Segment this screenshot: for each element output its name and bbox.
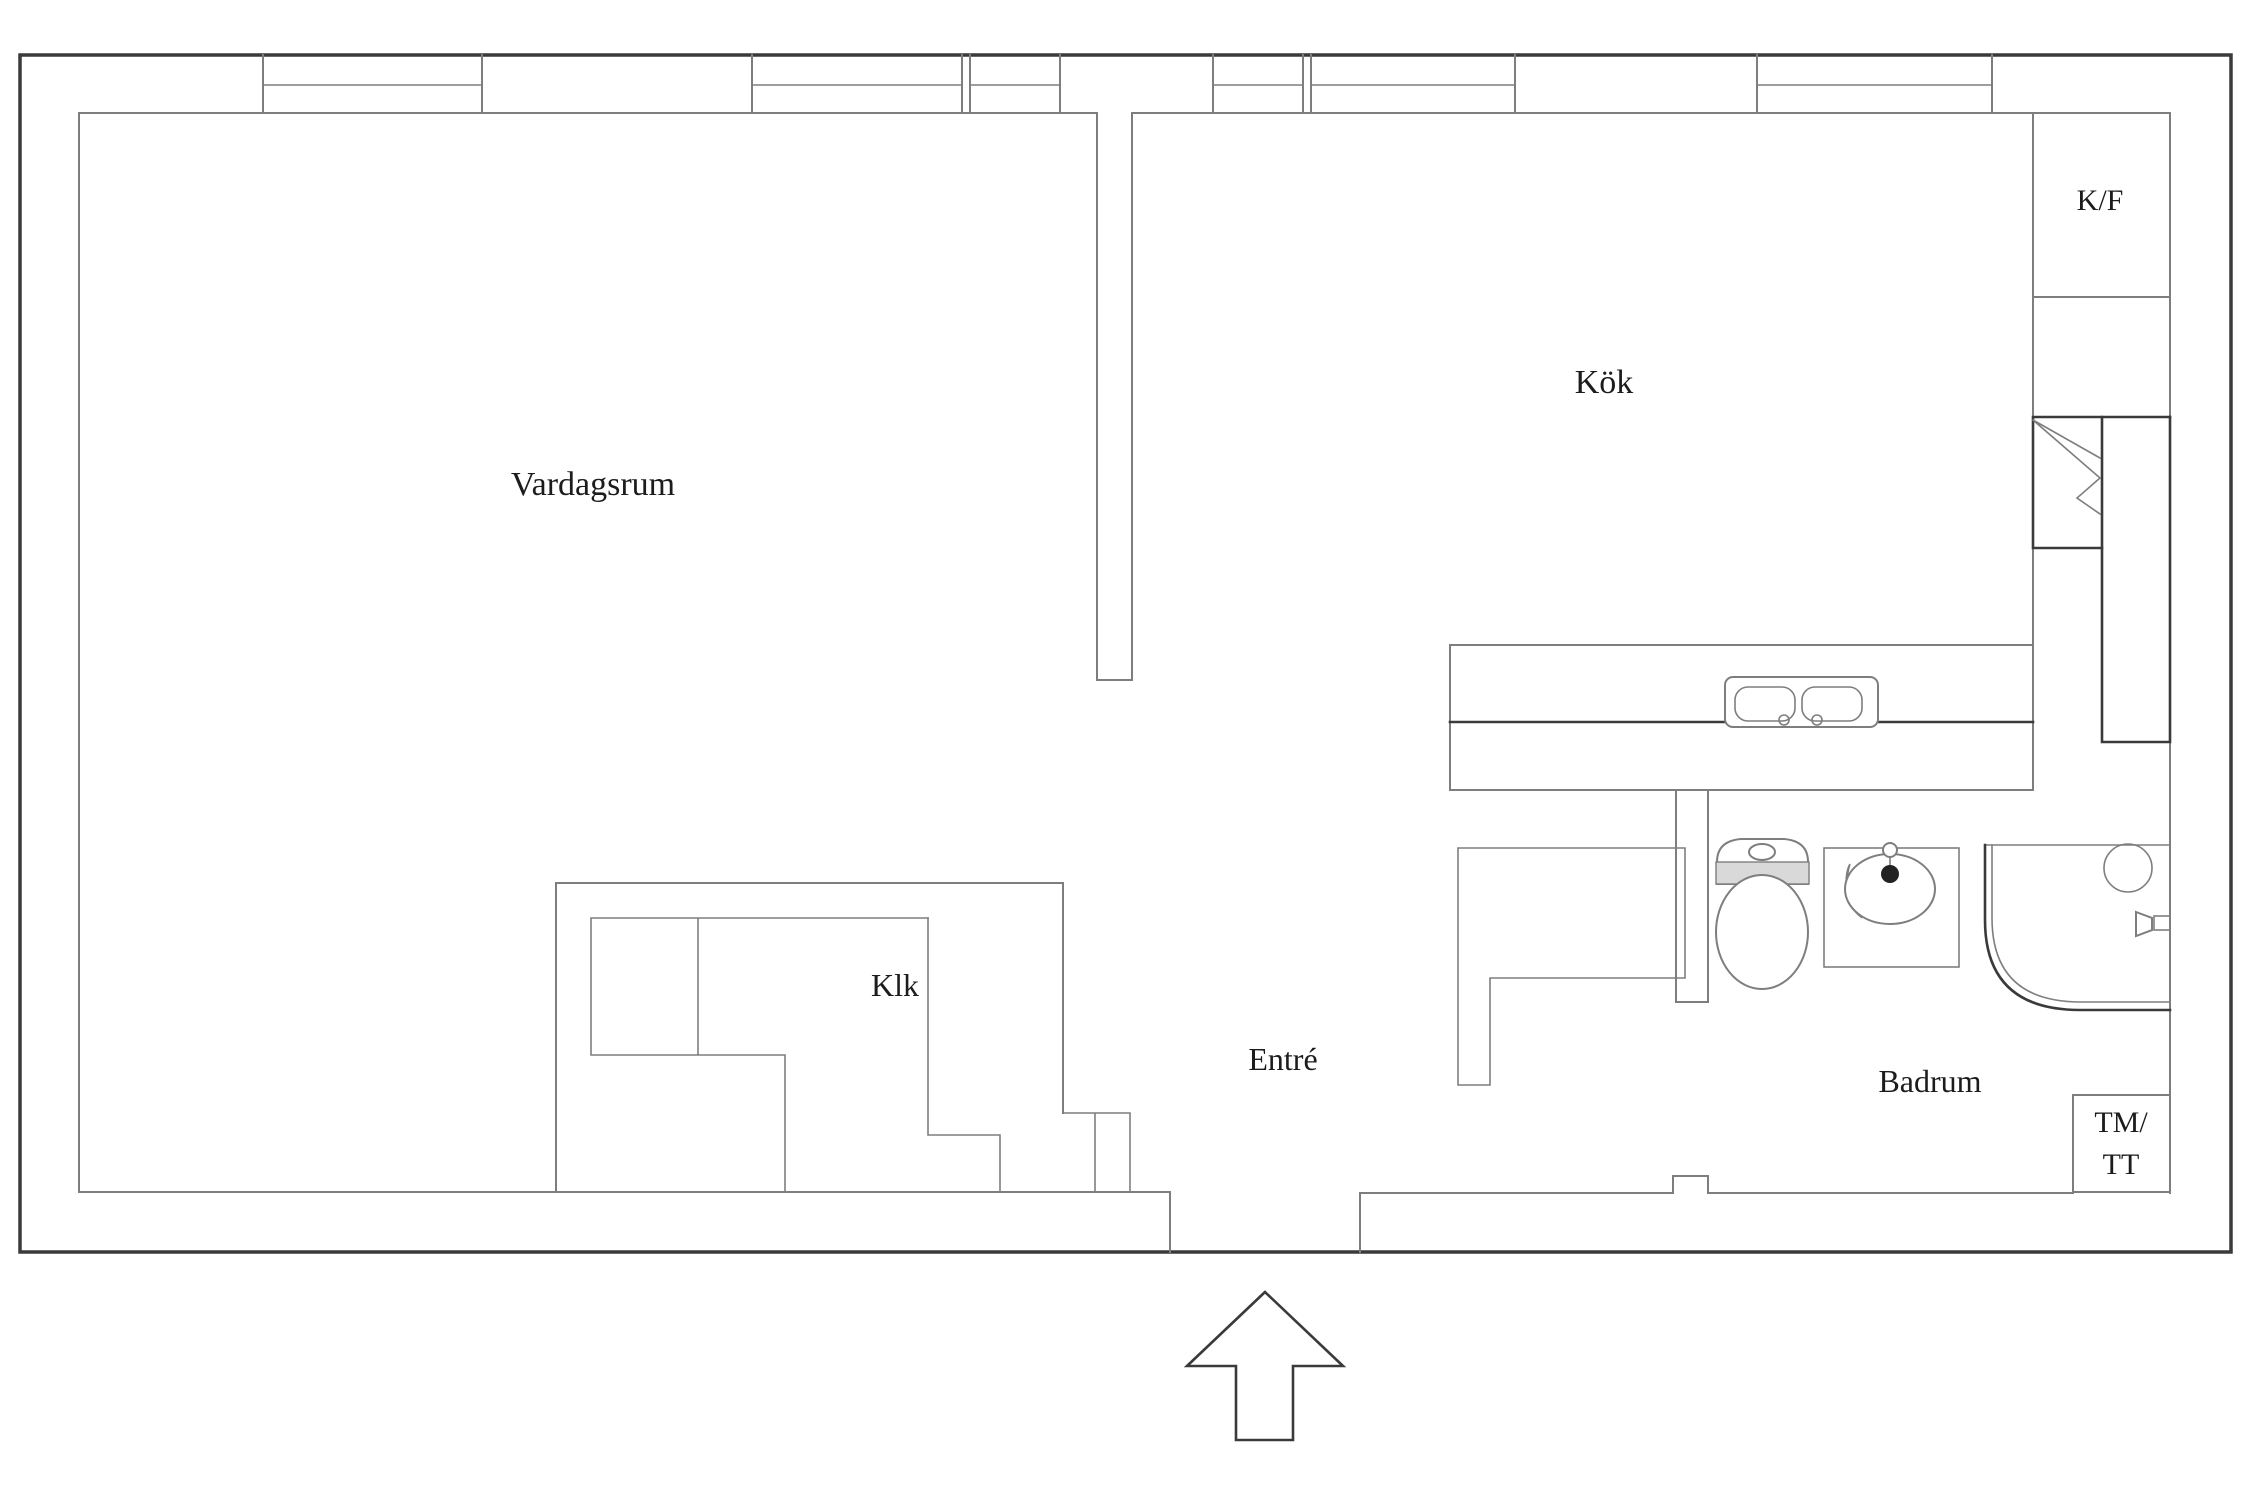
cabinet-folding-door-icon <box>2033 420 2100 514</box>
closet-label: Klk <box>871 967 919 1003</box>
bathtub-icon <box>1985 844 2170 1010</box>
kitchen-sink-icon <box>1725 677 1878 727</box>
window-band <box>79 55 2170 113</box>
room-labels: Vardagsrum Kök Klk Entré Badrum K/F TM/ … <box>511 184 2148 1181</box>
fridge-freezer-label: K/F <box>2077 184 2124 217</box>
entrance-arrow-icon <box>1187 1292 1343 1440</box>
living-room-label: Vardagsrum <box>511 466 675 503</box>
closet-walls <box>556 883 1063 1192</box>
washer-dryer-label-line2: TT <box>2103 1148 2140 1181</box>
hall-cabinet <box>1458 848 1685 1085</box>
washbasin-icon <box>1824 843 1959 967</box>
tall-cabinet <box>2033 417 2170 742</box>
kitchen-label: Kök <box>1575 364 1634 401</box>
floor-plan: Vardagsrum Kök Klk Entré Badrum K/F TM/ … <box>0 0 2250 1500</box>
washer-dryer-label-line1: TM/ <box>2094 1106 2148 1139</box>
entrance-label: Entré <box>1248 1041 1317 1077</box>
closet-wardrobes <box>591 918 1130 1192</box>
toilet-icon <box>1716 839 1809 989</box>
floor-plan-canvas: Vardagsrum Kök Klk Entré Badrum K/F TM/ … <box>0 0 2250 1500</box>
bathroom-label: Badrum <box>1878 1063 1981 1099</box>
